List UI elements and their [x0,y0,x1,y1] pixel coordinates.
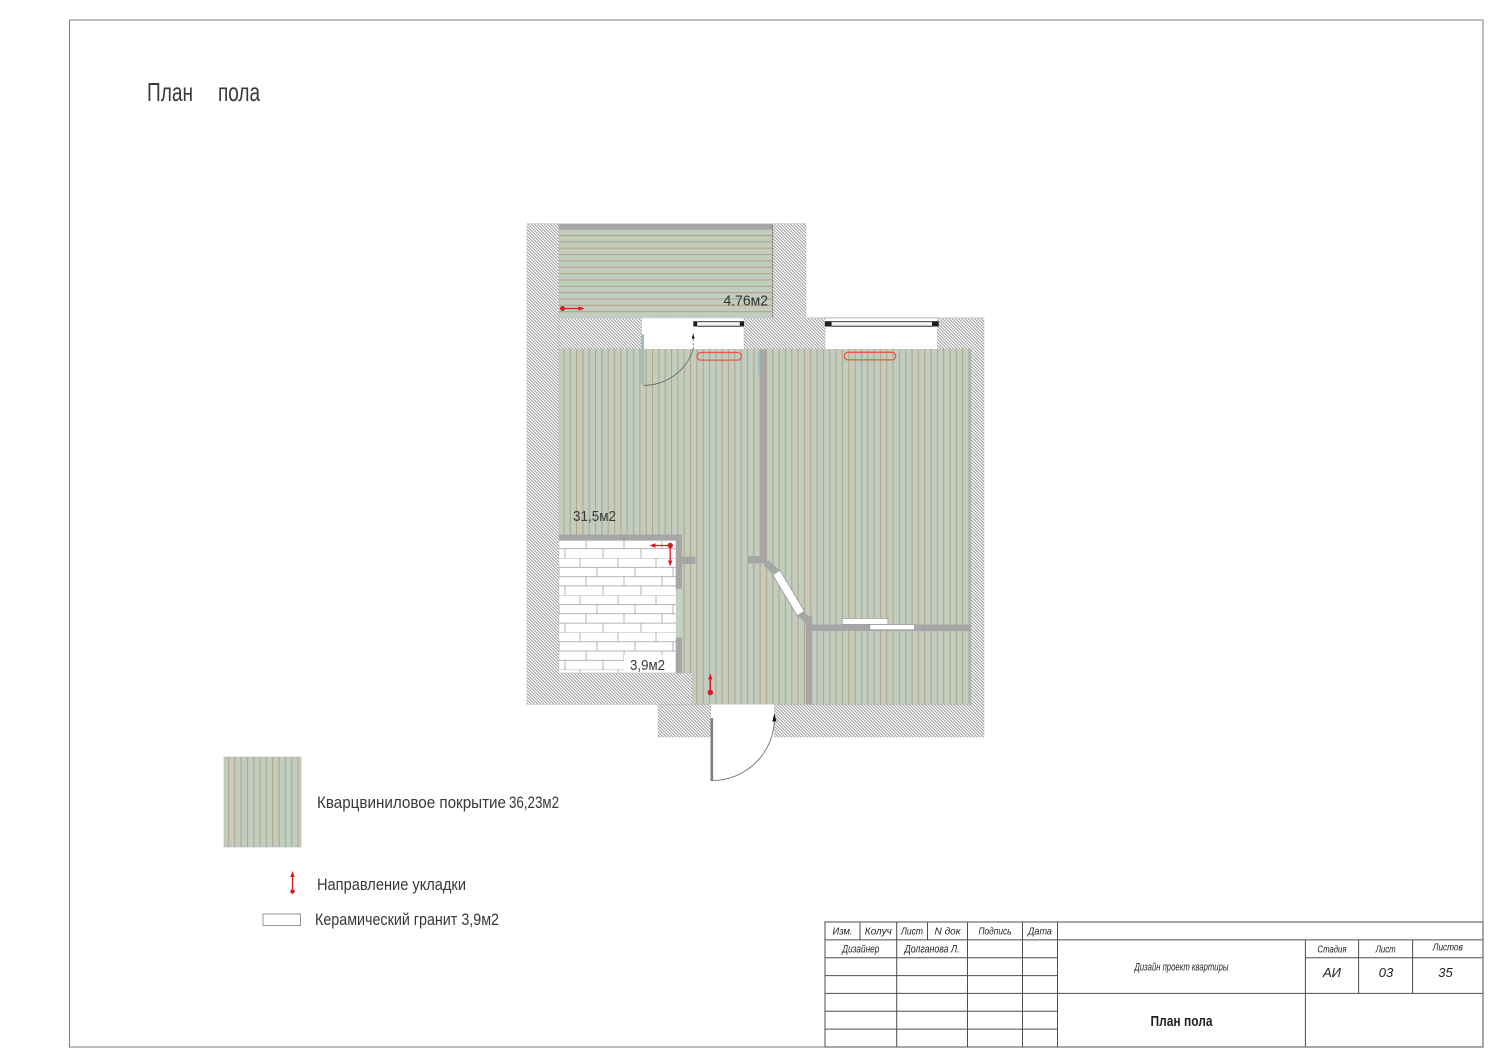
svg-text:АИ: АИ [1322,965,1342,980]
svg-text:Направление укладки: Направление укладки [317,876,466,894]
svg-text:3,9м2: 3,9м2 [630,658,665,674]
svg-text:Стадия: Стадия [1318,945,1348,956]
svg-text:Дизайн проект квартиры: Дизайн проект квартиры [1133,962,1228,974]
svg-text:N док: N док [935,927,962,938]
svg-text:4.76м2: 4.76м2 [724,293,769,310]
svg-text:Листов: Листов [1432,943,1463,954]
svg-text:Лист: Лист [1375,945,1396,956]
svg-text:Планпола: Планпола [147,77,260,107]
svg-text:Изм.: Изм. [833,927,853,938]
svg-text:Лист: Лист [900,927,923,938]
svg-text:Долганова Л.: Долганова Л. [903,944,960,956]
svg-text:03: 03 [1379,965,1394,980]
svg-text:Подпись: Подпись [979,927,1012,938]
svg-text:Кварцвиниловое покрытие36,23м2: Кварцвиниловое покрытие36,23м2 [317,794,559,812]
svg-text:Дизайнер: Дизайнер [841,944,879,956]
svg-text:План пола: План пола [1151,1014,1214,1030]
svg-text:Керамический гранит 3,9м2: Керамический гранит 3,9м2 [315,911,499,929]
svg-text:Колуч: Колуч [865,927,892,938]
svg-text:Дата: Дата [1027,927,1052,938]
svg-text:31,5м2: 31,5м2 [573,509,616,525]
svg-text:35: 35 [1438,965,1453,980]
